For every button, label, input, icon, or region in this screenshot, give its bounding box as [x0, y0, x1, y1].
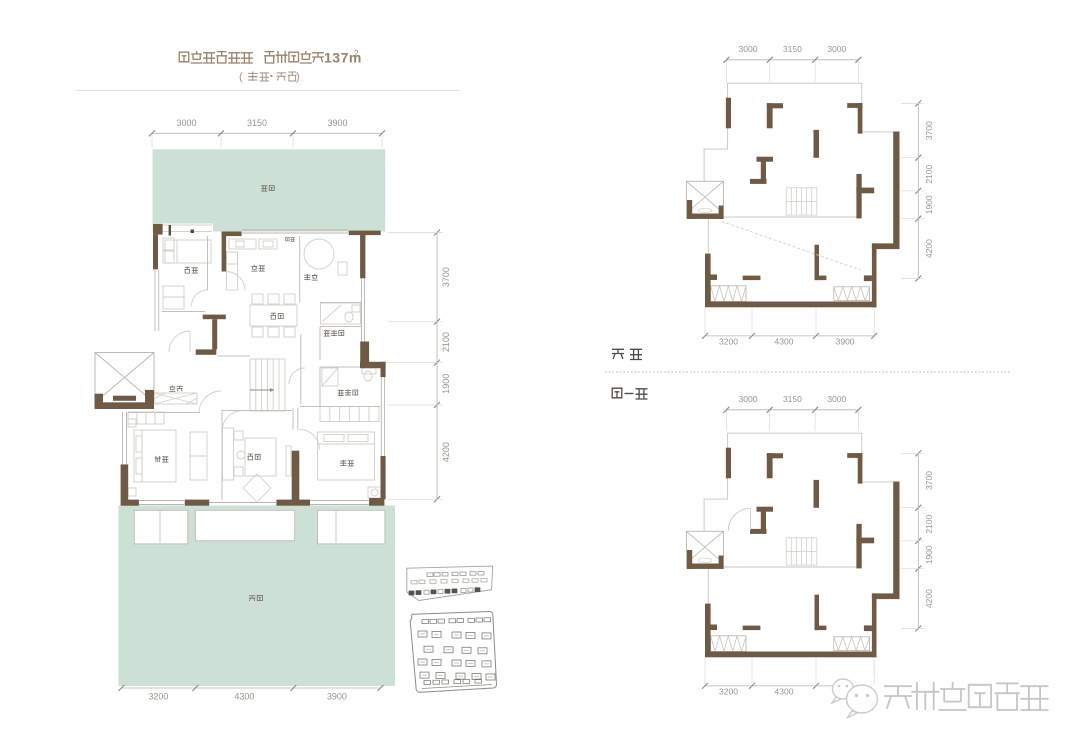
svg-text:4300: 4300	[775, 337, 794, 347]
svg-text:3000: 3000	[739, 394, 758, 404]
svg-text:3900: 3900	[327, 118, 347, 128]
svg-text:3700: 3700	[924, 471, 934, 490]
svg-text:3700: 3700	[924, 121, 934, 140]
svg-text:2: 2	[354, 49, 359, 58]
svg-text:3150: 3150	[783, 394, 802, 404]
svg-text:3000: 3000	[176, 118, 196, 128]
svg-text:3900: 3900	[327, 692, 347, 702]
svg-text:2100: 2100	[441, 332, 451, 352]
svg-text:4200: 4200	[924, 239, 934, 258]
svg-text:3200: 3200	[148, 692, 168, 702]
svg-text:1900: 1900	[924, 545, 934, 564]
svg-text:4300: 4300	[775, 687, 794, 697]
svg-text:): )	[296, 71, 300, 83]
svg-text:2100: 2100	[924, 164, 934, 183]
svg-text:3150: 3150	[247, 118, 267, 128]
svg-text:3000: 3000	[827, 44, 846, 54]
svg-text:3200: 3200	[719, 337, 738, 347]
svg-text:3700: 3700	[441, 267, 451, 287]
svg-text:3000: 3000	[827, 394, 846, 404]
svg-text:3000: 3000	[739, 44, 758, 54]
svg-text:3200: 3200	[719, 687, 738, 697]
svg-text:4200: 4200	[924, 589, 934, 608]
svg-text:3150: 3150	[783, 44, 802, 54]
svg-text:1900: 1900	[441, 374, 451, 394]
svg-text:(: (	[239, 71, 243, 83]
svg-text:4200: 4200	[441, 442, 451, 462]
svg-text:2100: 2100	[924, 514, 934, 533]
svg-text:3900: 3900	[836, 337, 855, 347]
svg-text:4300: 4300	[234, 692, 254, 702]
svg-text:1900: 1900	[924, 195, 934, 214]
